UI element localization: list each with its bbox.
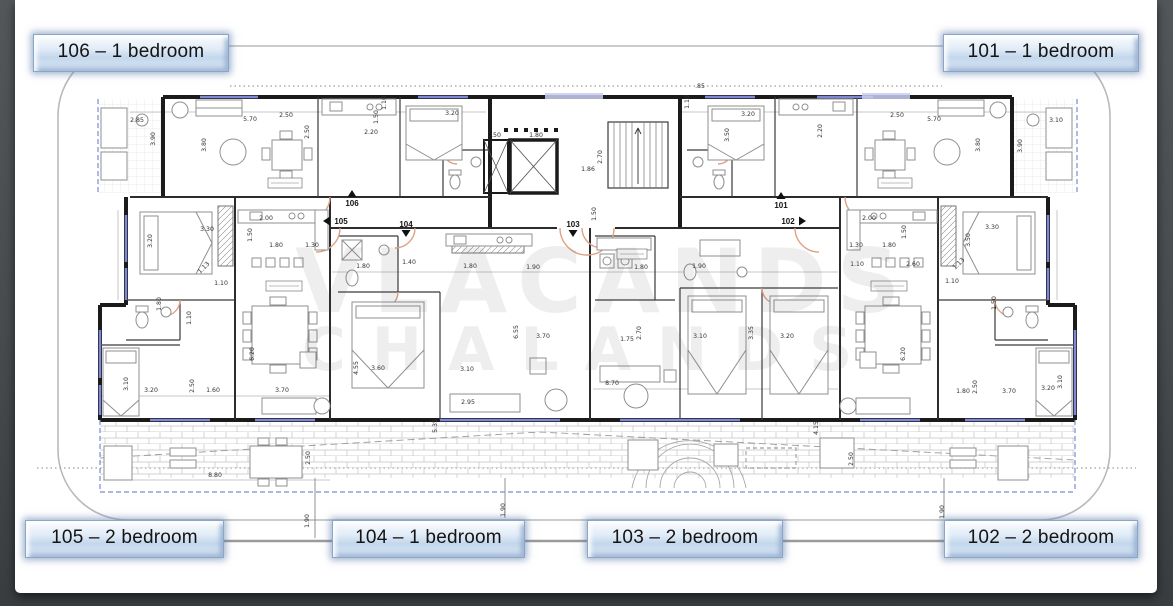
- dimension-label: 1.50: [901, 225, 908, 239]
- sofa: [934, 100, 1006, 165]
- dimension-label: 2.70: [636, 326, 643, 340]
- dimension-label: 1.80: [634, 264, 648, 271]
- bed: [1036, 348, 1072, 416]
- dimension-label: .85: [695, 83, 705, 90]
- entry-arrow-icon: [402, 230, 411, 237]
- unit-label-text: 102 – 2 bedroom: [968, 527, 1115, 549]
- bed: [963, 212, 1035, 274]
- dining-set: [865, 131, 915, 179]
- dimension-label: 1.10: [214, 280, 228, 287]
- dimension-label: 2.50: [279, 112, 293, 119]
- bathroom: [136, 306, 171, 328]
- unit-label-105[interactable]: 105 – 2 bedroom: [25, 520, 224, 558]
- dimension-label: 3.10: [460, 366, 474, 373]
- room-partitions: [100, 97, 1075, 420]
- dimension-label: 2.70: [597, 150, 604, 164]
- dimension-label: 3.50: [724, 128, 731, 142]
- dimension-label: 4.55: [353, 361, 360, 375]
- dimension-label: 3.20: [780, 333, 794, 340]
- dimension-label: 3.20: [1041, 385, 1055, 392]
- dimension-label: 3.50: [965, 233, 972, 247]
- unit-label-text: 104 – 1 bedroom: [355, 527, 502, 549]
- unit-marker: 106: [345, 199, 359, 208]
- unit-marker: 103: [566, 220, 580, 229]
- bed: [352, 302, 424, 388]
- unit-label-102[interactable]: 102 – 2 bedroom: [944, 520, 1138, 558]
- entry-arrow-icon: [348, 190, 357, 197]
- dimension-label: 1.50: [991, 296, 998, 310]
- dimension-label: 1.80: [956, 388, 970, 395]
- dimension-label: 3.10: [1049, 117, 1063, 124]
- dimension-label: 3.90: [1017, 139, 1024, 153]
- dimension-label: 2.20: [364, 129, 378, 136]
- unit-label-103[interactable]: 103 – 2 bedroom: [587, 520, 783, 558]
- dimension-label: 5.35: [432, 419, 439, 433]
- dimension-label: 1.10: [186, 311, 193, 325]
- bed: [770, 296, 828, 394]
- dimension-label: 3.10: [1057, 375, 1064, 389]
- dimension-label: 1.90: [526, 264, 540, 271]
- dimension-label: 3.20: [144, 387, 158, 394]
- wardrobe: [941, 206, 956, 266]
- dimension-label: 5.70: [927, 116, 941, 123]
- dimension-label: 1.10: [945, 278, 959, 285]
- sofa: [172, 100, 246, 165]
- dimension-label: 3.80: [201, 138, 208, 152]
- unit-label-text: 101 – 1 bedroom: [968, 41, 1115, 63]
- dimension-label: 3.10: [123, 377, 130, 391]
- floor-plan: 2.855.702.502.203.203.903.802.501.501.10…: [0, 0, 1173, 606]
- bed: [688, 296, 746, 394]
- dimension-label: 1.80: [463, 263, 477, 270]
- dimension-label: 2.50: [305, 451, 312, 465]
- dimension-label: 1.60: [206, 387, 220, 394]
- dimension-label: 3.35: [748, 326, 755, 340]
- unit-label-101[interactable]: 101 – 1 bedroom: [943, 34, 1139, 72]
- dimension-label: 2.50: [890, 112, 904, 119]
- unit-marker: 105: [334, 217, 348, 226]
- sofa: [600, 366, 676, 408]
- dimension-label: 1.90: [500, 503, 507, 517]
- dimension-label: 1.80: [529, 132, 543, 139]
- kitchen: [847, 210, 937, 267]
- dimension-label: 1.80: [156, 297, 163, 311]
- dimension-label: 3.70: [536, 333, 550, 340]
- dimension-label: 6.20: [900, 347, 907, 361]
- unit-marker: 102: [781, 217, 795, 226]
- slide-background: 2.855.702.502.203.203.903.802.501.501.10…: [0, 0, 1173, 606]
- bed: [708, 106, 764, 160]
- bed: [103, 348, 139, 416]
- dimension-label: 6.20: [249, 347, 256, 361]
- dimension-label: 1.10: [381, 96, 388, 110]
- dimension-label: 1.90: [939, 505, 946, 519]
- window-sill: [545, 93, 603, 99]
- bathroom: [693, 157, 725, 189]
- unit-label-text: 103 – 2 bedroom: [612, 527, 759, 549]
- dimension-label: 3.20: [741, 111, 755, 118]
- unit-label-text: 105 – 2 bedroom: [51, 527, 198, 549]
- entry-arrow-icon: [777, 192, 786, 199]
- unit-marker: 101: [774, 201, 788, 210]
- dimension-label: 5.70: [243, 116, 257, 123]
- dimension-label: 2.00: [862, 215, 876, 222]
- dimension-label: 1.10: [850, 261, 864, 268]
- dimension-label: 1.90: [692, 263, 706, 270]
- window-sill: [862, 93, 910, 99]
- dimension-label: 3.60: [371, 365, 385, 372]
- dimension-label: 2.85: [130, 117, 144, 124]
- dimension-label: 8.80: [208, 472, 222, 479]
- unit-label-text: 106 – 1 bedroom: [58, 41, 205, 63]
- dimension-label: 2.00: [259, 215, 273, 222]
- bathroom: [684, 240, 747, 280]
- dimension-label: 1.80: [269, 242, 283, 249]
- entry-arrow-icon: [799, 217, 806, 226]
- dimension-label: 1.50: [591, 207, 598, 221]
- dimension-label: 3.80: [975, 138, 982, 152]
- dimension-label: 1.50: [373, 110, 380, 124]
- dimension-label: 1.50: [247, 228, 254, 242]
- dimension-label: 8.70: [605, 380, 619, 387]
- bathroom: [449, 157, 481, 189]
- dimension-label: 2.50: [189, 379, 196, 393]
- dimension-label: .50: [491, 132, 501, 139]
- dimension-label: 1.80: [356, 263, 370, 270]
- dimension-label: 3.30: [985, 224, 999, 231]
- dimension-label: 3.90: [150, 132, 157, 146]
- dimension-label: 2.50: [972, 380, 979, 394]
- dimension-label: 2.50: [848, 452, 855, 466]
- dimension-label: 4.15: [813, 421, 820, 435]
- dimension-label: 3.10: [693, 333, 707, 340]
- unit-label-104[interactable]: 104 – 1 bedroom: [332, 520, 525, 558]
- bathroom: [1003, 306, 1038, 328]
- dimension-label: 3.70: [275, 387, 289, 394]
- dimension-label: 1.75: [620, 336, 634, 343]
- dimension-label: 3.20: [147, 234, 154, 248]
- outer-walls: [100, 95, 1075, 420]
- dimension-label: 1.86: [581, 166, 595, 173]
- dimension-label: 3.70: [1002, 388, 1016, 395]
- entry-arrow-icon: [569, 230, 578, 237]
- dimension-label: 2.60: [906, 261, 920, 268]
- dimension-label: 3.20: [445, 110, 459, 117]
- wardrobe: [218, 206, 233, 266]
- dimension-label: 2.20: [817, 124, 824, 138]
- dimension-label: 1.40: [402, 259, 416, 266]
- kitchen: [779, 99, 853, 115]
- dimension-label: 1.10: [684, 95, 691, 109]
- dimension-label: 2.50: [304, 125, 311, 139]
- dimension-label: 6.55: [513, 325, 520, 339]
- dimension-label: 1.80: [882, 242, 896, 249]
- unit-marker: 104: [399, 220, 413, 229]
- dimension-label: 1.90: [304, 514, 311, 528]
- dimension-label: 3.30: [200, 226, 214, 233]
- windows: [100, 97, 1075, 420]
- kitchen: [446, 234, 532, 246]
- dimension-label: 2.95: [461, 399, 475, 406]
- dimension-label: 1.30: [305, 242, 319, 249]
- staircase: [608, 122, 668, 188]
- dimension-label: 1.30: [849, 242, 863, 249]
- unit-label-106[interactable]: 106 – 1 bedroom: [33, 34, 229, 72]
